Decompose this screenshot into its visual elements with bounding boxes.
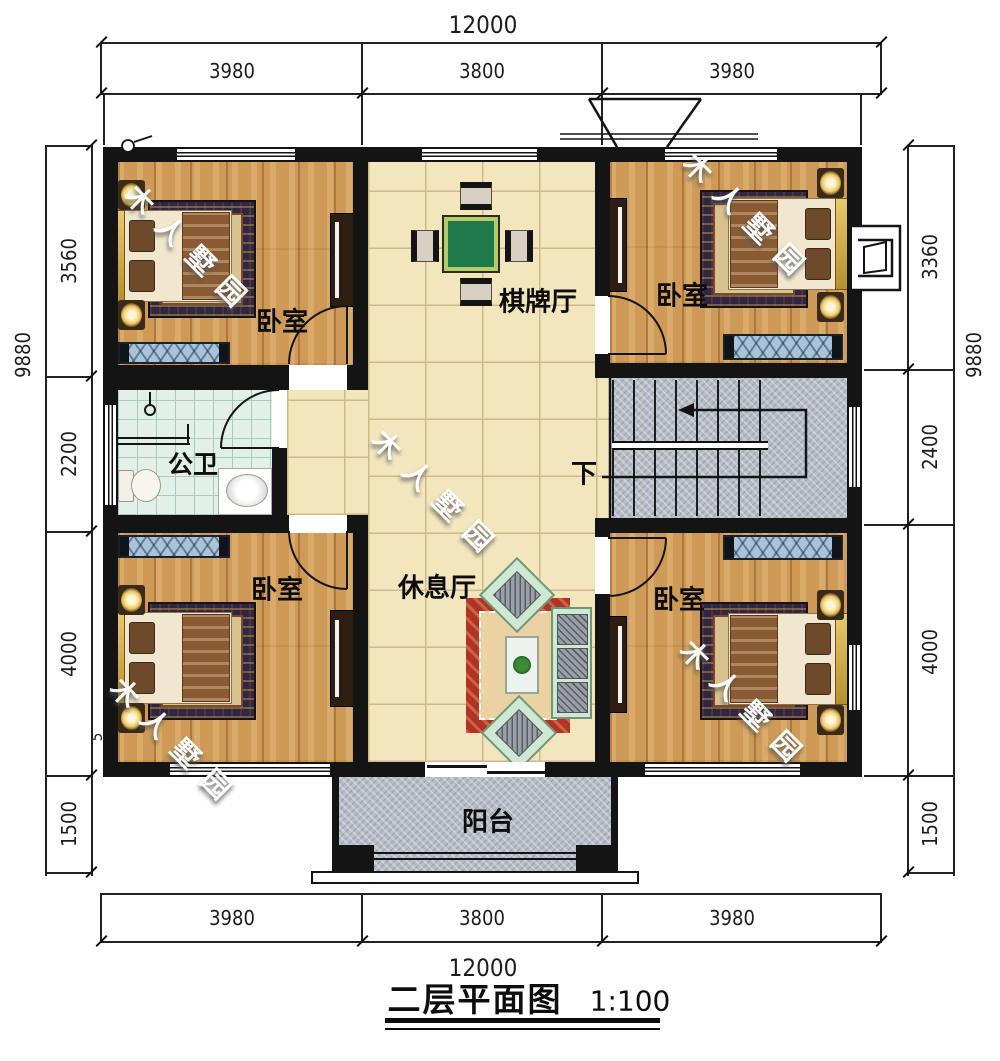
dim-line: [880, 42, 882, 95]
dim-line: [100, 93, 882, 95]
chair: [460, 278, 492, 306]
sofa-three-seat: [551, 607, 592, 719]
label-stairs-down: 下: [571, 454, 597, 491]
dim-line: [361, 42, 363, 95]
label-lounge: 休息厅: [398, 568, 476, 605]
dim-line: [100, 42, 882, 44]
sofa-cushion: [557, 682, 588, 713]
bed-pillow: [805, 623, 831, 655]
dim-line: [45, 872, 93, 874]
dim-top-seg1: 3980: [209, 59, 255, 83]
bed-pillow: [129, 260, 155, 292]
label-bathroom: 公卫: [168, 445, 218, 481]
label-chess-hall: 棋牌厅: [499, 282, 577, 319]
door-opening: [289, 365, 347, 390]
window: [422, 147, 537, 162]
drawing-title: 二层平面图: [388, 973, 563, 1021]
nightstand-lamp: [118, 585, 145, 615]
wall-interior: [353, 533, 368, 762]
dim-line: [907, 145, 955, 147]
label-bedroom-br: 卧室: [653, 580, 705, 617]
sofa-cushion: [557, 614, 588, 645]
window: [847, 407, 862, 487]
bed-pillow: [129, 622, 155, 654]
door-opening: [595, 537, 610, 594]
dim-line: [601, 42, 603, 95]
extension-line: [361, 95, 363, 145]
chair: [411, 230, 439, 262]
tv-cabinet: [330, 213, 355, 307]
sliding-door-panel: [427, 765, 487, 768]
dim-line: [100, 893, 882, 895]
window: [177, 147, 295, 162]
bed-pillow: [805, 208, 831, 240]
nightstand-lamp: [817, 292, 844, 322]
door-opening: [289, 515, 347, 533]
label-bedroom-tr: 卧室: [656, 276, 708, 313]
dim-line: [45, 145, 47, 876]
window: [103, 405, 118, 505]
extension-line: [864, 524, 907, 526]
extension-line: [864, 775, 907, 777]
dim-right-seg3: 4000: [918, 629, 942, 675]
dim-top-total: 12000: [449, 11, 518, 39]
dim-line: [907, 145, 909, 876]
dim-bottom-seg3: 3980: [709, 906, 755, 930]
nightstand-lamp: [817, 168, 844, 198]
drawing-scale: 1:100: [590, 985, 671, 1018]
title-underline: [385, 1018, 660, 1023]
toilet-bowl: [131, 469, 161, 502]
cabinet-bench: [723, 535, 843, 560]
nightstand-lamp: [817, 590, 844, 620]
dim-line: [45, 531, 93, 533]
dim-line: [361, 893, 363, 943]
cabinet-bench: [118, 535, 230, 558]
extension-line: [103, 95, 105, 145]
dim-line: [907, 369, 955, 371]
flue-top: [560, 99, 758, 147]
dim-right-seg1: 3360: [918, 234, 942, 280]
dim-line: [907, 524, 955, 526]
door-opening: [272, 390, 287, 448]
nightstand-lamp: [118, 300, 145, 330]
dim-right-seg4: 1500: [918, 801, 942, 847]
dim-right-total: 9880: [962, 332, 986, 378]
window: [847, 645, 862, 710]
dim-top-seg2: 3800: [459, 59, 505, 83]
armchair-cushion: [493, 571, 541, 619]
extension-line: [860, 95, 862, 145]
dim-left-seg1: 3560: [57, 238, 81, 284]
door-opening: [595, 296, 610, 354]
bed-pillow: [805, 663, 831, 695]
sofa-cushion: [557, 648, 588, 679]
nightstand-lamp: [817, 705, 844, 735]
dim-line: [45, 145, 93, 147]
dim-line: [100, 893, 102, 943]
sink-basin: [226, 474, 268, 507]
label-bedroom-bl: 卧室: [251, 570, 303, 607]
stair-handrail: [612, 441, 768, 450]
dim-line: [953, 145, 955, 876]
bed-quilt: [182, 614, 230, 702]
dim-line: [907, 775, 955, 777]
dim-bottom-seg1: 3980: [209, 906, 255, 930]
dim-line: [45, 775, 93, 777]
chair: [460, 182, 492, 210]
dim-line: [100, 42, 102, 95]
dim-top-seg3: 3980: [709, 59, 755, 83]
dim-left-seg4: 1500: [57, 801, 81, 847]
dim-line: [880, 893, 882, 943]
floor-plan-canvas: 12000 3980 3800 3980 3980 3800 3980 1200…: [0, 0, 1000, 1061]
dim-line: [45, 376, 93, 378]
dim-line: [601, 893, 603, 943]
title-underline: [385, 1028, 660, 1030]
window: [665, 147, 777, 162]
extension-line: [864, 369, 907, 371]
tv-cabinet: [330, 610, 355, 707]
extension-line: [601, 95, 603, 145]
floor-corridor: [287, 390, 368, 515]
mahjong-table: [444, 217, 498, 271]
dim-line: [91, 145, 93, 876]
wall-interior: [353, 147, 368, 390]
cabinet-bench: [723, 334, 843, 360]
dim-left-seg3: 4000: [57, 631, 81, 677]
cabinet-bench: [118, 342, 230, 364]
dim-left-seg2: 2200: [57, 431, 81, 477]
wall-interior: [595, 363, 862, 378]
dim-line: [100, 941, 882, 943]
dim-bottom-seg2: 3800: [459, 906, 505, 930]
armchair-cushion: [495, 709, 543, 757]
plant: [513, 656, 531, 674]
wall-interior: [595, 518, 862, 533]
label-bedroom-tl: 卧室: [256, 302, 308, 339]
balcony-post: [332, 845, 374, 872]
dim-left-total: 9880: [11, 332, 35, 378]
dim-right-seg2: 2400: [918, 424, 942, 470]
sliding-door-panel: [487, 771, 547, 774]
balcony-post: [576, 845, 618, 872]
label-balcony: 阳台: [462, 802, 514, 839]
dim-line: [907, 872, 955, 874]
chair: [505, 230, 533, 262]
